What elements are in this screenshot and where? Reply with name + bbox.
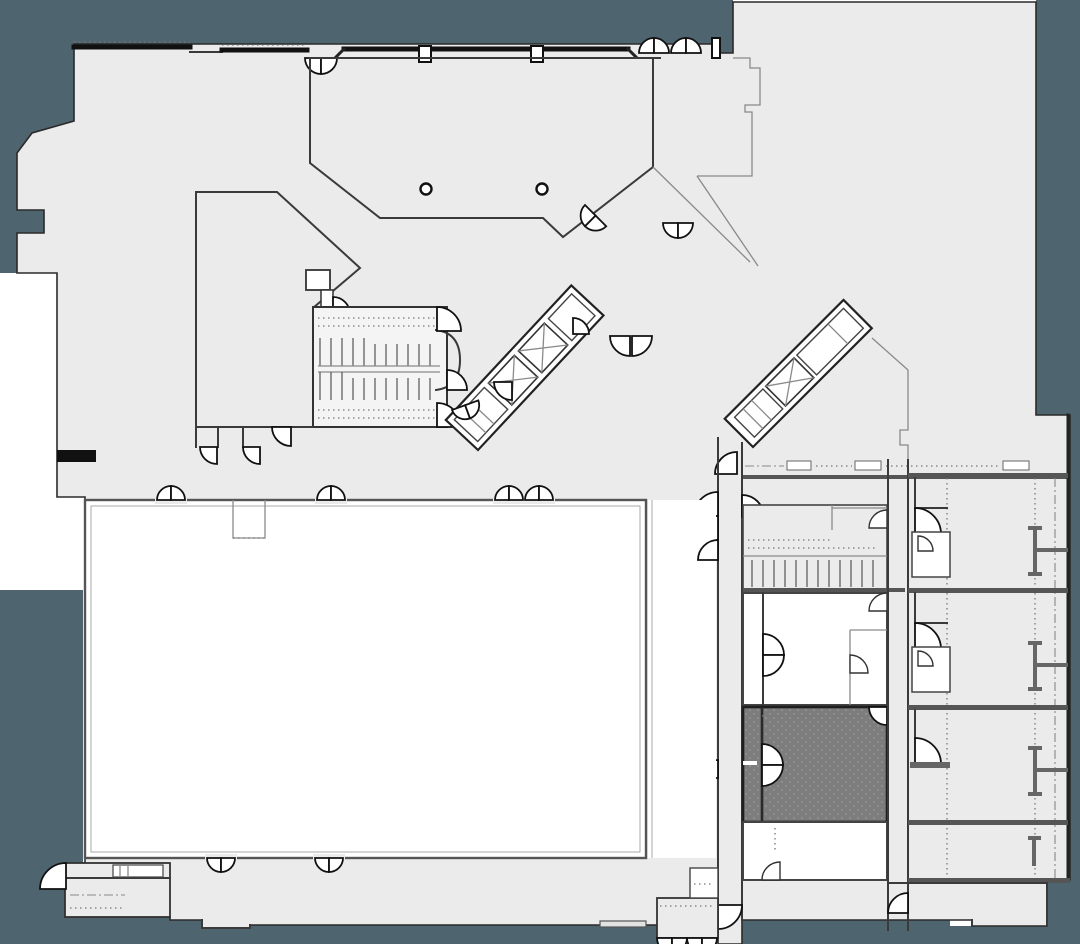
west-wall-block xyxy=(57,450,96,462)
meeting-room-upper[interactable] xyxy=(743,593,887,705)
ballroom[interactable] xyxy=(85,486,646,872)
exterior-bottom-mid xyxy=(742,920,950,944)
stair-room-east xyxy=(743,505,905,592)
service-neck xyxy=(321,290,333,307)
south-closet xyxy=(690,868,718,898)
south-wall-recess xyxy=(600,921,646,927)
floor-plan-stage xyxy=(0,0,1080,944)
counter xyxy=(910,762,950,768)
wall-pier xyxy=(419,46,431,62)
floor-plan-svg xyxy=(0,0,1080,944)
selected-room[interactable] xyxy=(743,707,887,822)
stair-block-west xyxy=(313,307,461,427)
column-icon xyxy=(537,184,548,195)
wall-pier xyxy=(531,46,543,62)
meeting-room-lower[interactable] xyxy=(743,822,887,880)
column-icon xyxy=(421,184,432,195)
wall-pier xyxy=(712,38,720,58)
service-closet xyxy=(306,270,330,290)
